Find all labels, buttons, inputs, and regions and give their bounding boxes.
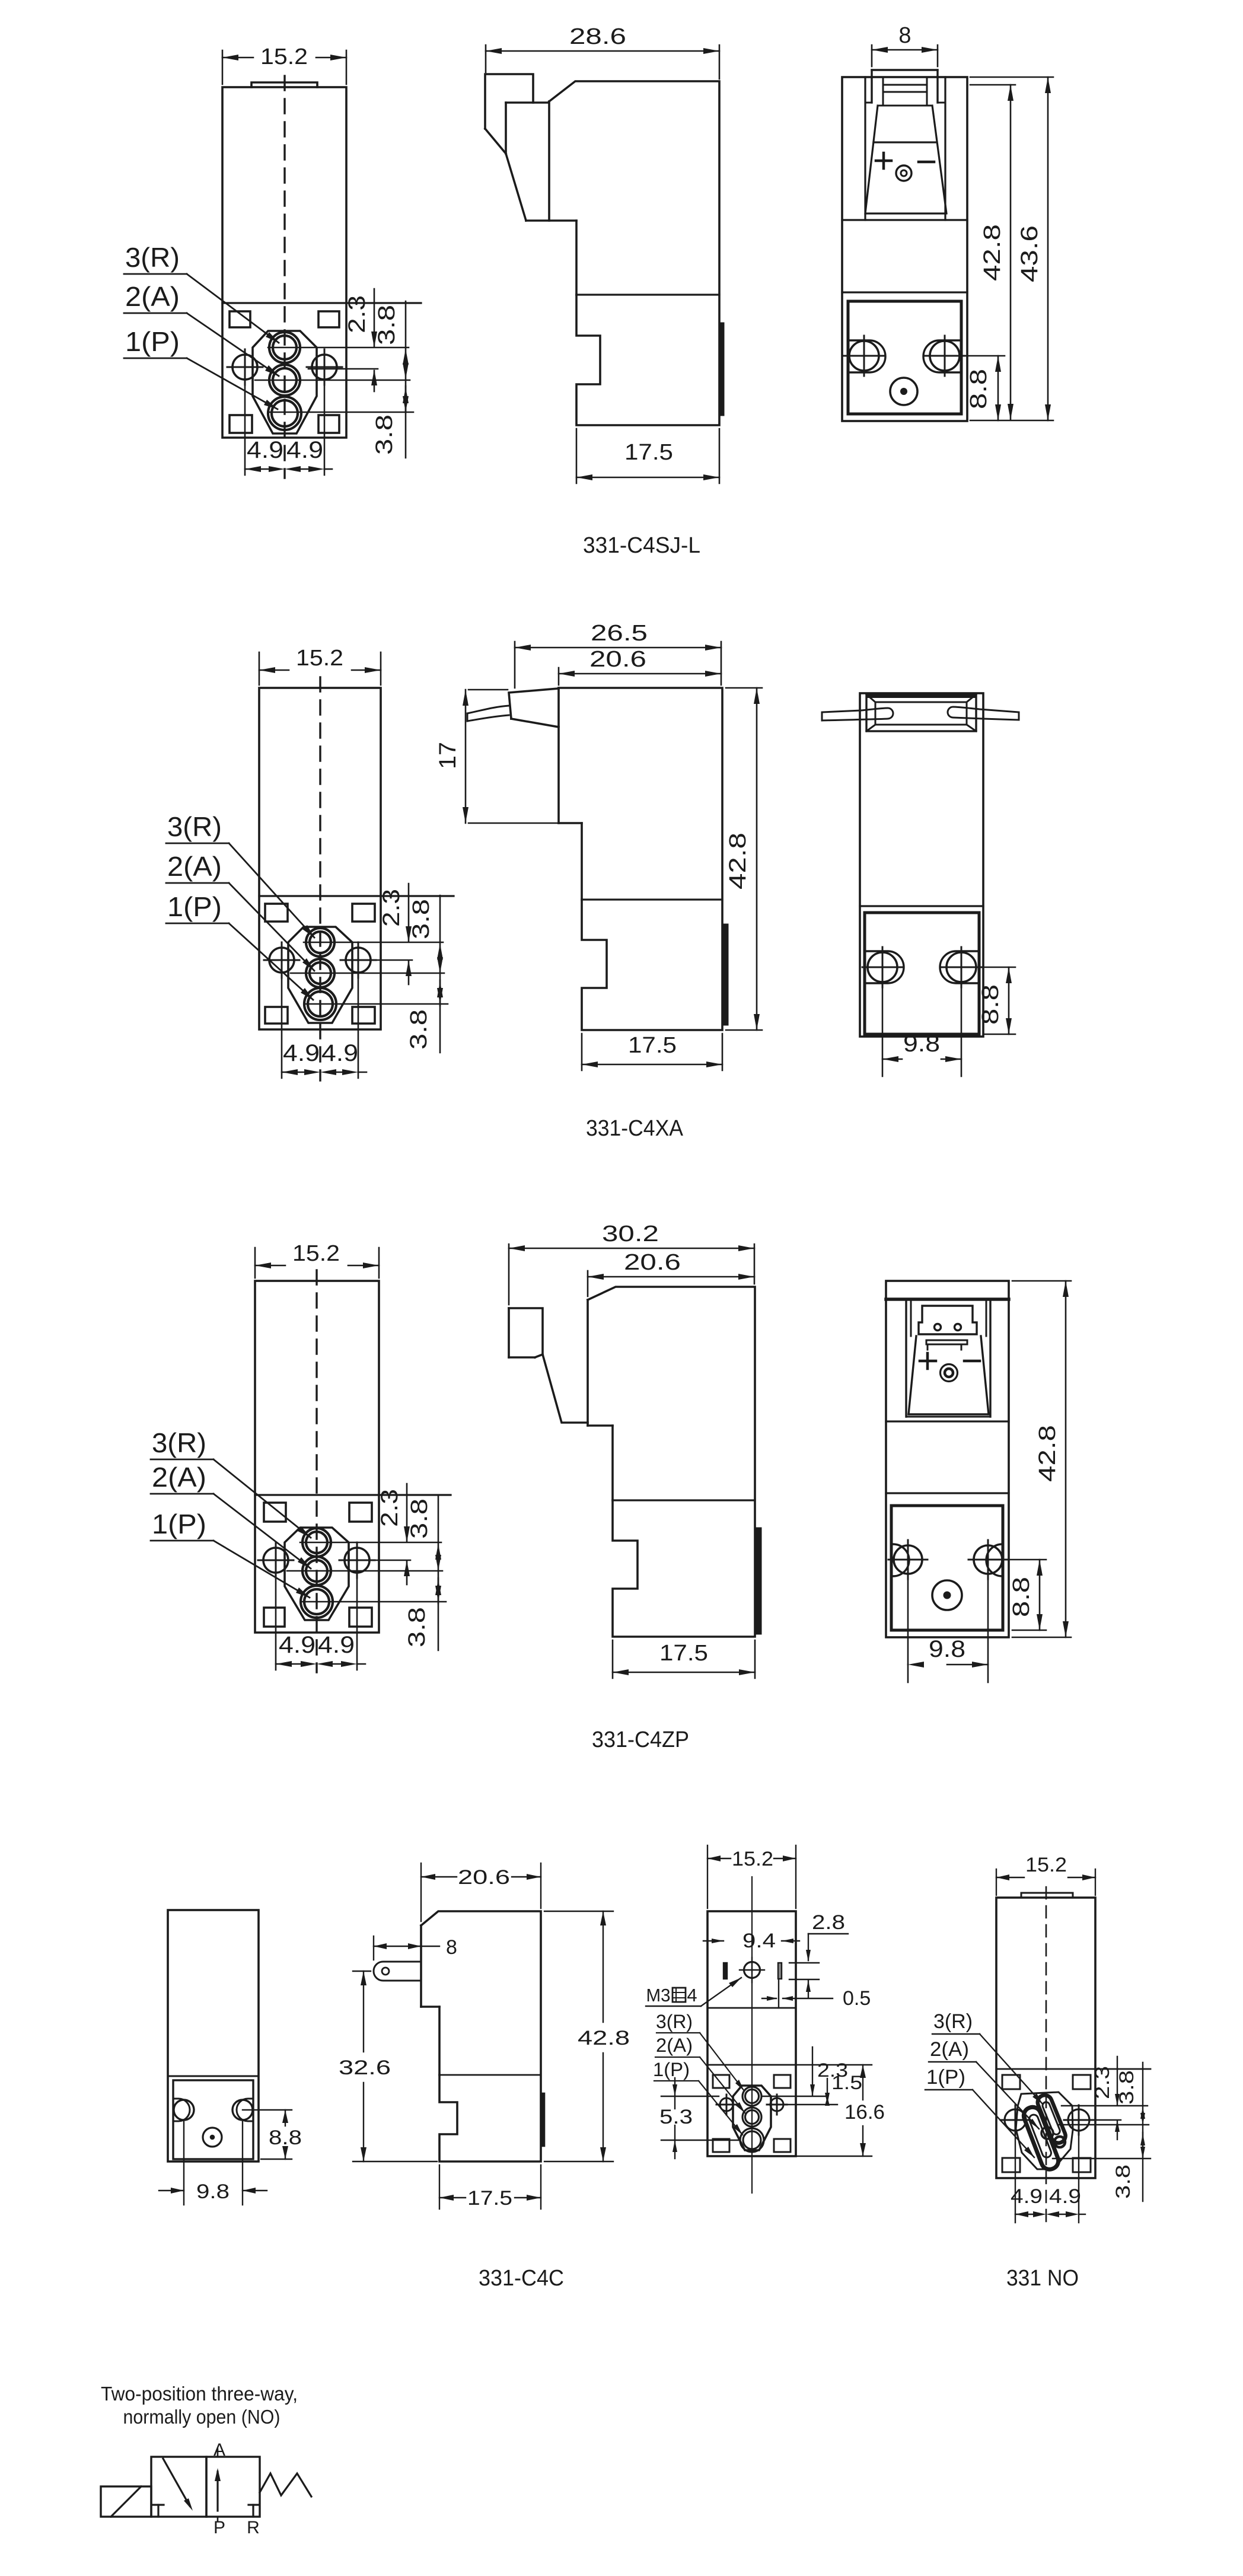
svg-text:32.6: 32.6 <box>339 2057 391 2079</box>
svg-text:331-C4C: 331-C4C <box>479 2266 564 2291</box>
svg-text:1(P): 1(P) <box>653 2059 690 2080</box>
svg-text:15.2: 15.2 <box>292 1241 340 1266</box>
svg-text:42.8: 42.8 <box>578 2027 630 2049</box>
svg-text:1(P): 1(P) <box>125 326 180 357</box>
svg-text:2.3: 2.3 <box>1091 2066 1114 2099</box>
svg-text:3(R): 3(R) <box>167 811 222 842</box>
svg-text:331 NO: 331 NO <box>1006 2266 1079 2291</box>
svg-text:17.5: 17.5 <box>467 2187 512 2210</box>
svg-text:2(A): 2(A) <box>152 1462 206 1493</box>
svg-text:2.8: 2.8 <box>812 1911 845 1934</box>
svg-text:2(A): 2(A) <box>930 2038 969 2061</box>
svg-text:16.6: 16.6 <box>844 2101 885 2124</box>
svg-text:9.8: 9.8 <box>929 1636 965 1662</box>
svg-text:15.2: 15.2 <box>1025 1854 1067 1876</box>
svg-text:4.9: 4.9 <box>1011 2185 1043 2208</box>
svg-text:20.6: 20.6 <box>458 1866 510 1889</box>
svg-text:3.8: 3.8 <box>1112 2164 1134 2199</box>
svg-text:3.8: 3.8 <box>406 1009 432 1050</box>
svg-text:3(R): 3(R) <box>933 2010 973 2033</box>
svg-text:4.9: 4.9 <box>1049 2185 1081 2208</box>
svg-text:R: R <box>247 2518 260 2537</box>
svg-text:20.6: 20.6 <box>624 1250 681 1275</box>
svg-text:17.5: 17.5 <box>628 1033 677 1058</box>
svg-text:9.8: 9.8 <box>903 1031 940 1057</box>
svg-text:331-C4XA: 331-C4XA <box>586 1116 684 1141</box>
svg-text:17.5: 17.5 <box>659 1641 708 1666</box>
svg-text:26.5: 26.5 <box>591 621 648 646</box>
svg-text:3(R): 3(R) <box>125 242 180 273</box>
svg-text:3.8: 3.8 <box>408 899 434 939</box>
svg-text:15.2: 15.2 <box>260 44 308 69</box>
svg-text:4.9: 4.9 <box>286 437 323 463</box>
svg-text:0.5: 0.5 <box>843 1987 871 2010</box>
svg-text:M3: M3 <box>646 1985 671 2006</box>
svg-text:5.3: 5.3 <box>659 2106 693 2128</box>
svg-text:1(P): 1(P) <box>152 1509 206 1539</box>
svg-text:20.6: 20.6 <box>589 647 646 672</box>
svg-text:17.5: 17.5 <box>624 440 673 465</box>
svg-text:331-C4SJ-L: 331-C4SJ-L <box>583 533 700 558</box>
svg-text:3(R): 3(R) <box>152 1427 206 1458</box>
svg-text:2(A): 2(A) <box>125 281 180 312</box>
svg-text:4.9: 4.9 <box>247 437 283 463</box>
svg-text:3(R): 3(R) <box>656 2011 693 2032</box>
svg-text:2.3: 2.3 <box>378 889 404 927</box>
svg-text:28.6: 28.6 <box>569 24 626 49</box>
svg-text:3.8: 3.8 <box>374 305 400 345</box>
svg-text:8: 8 <box>898 23 911 48</box>
svg-text:1(P): 1(P) <box>167 891 222 922</box>
svg-text:4.9: 4.9 <box>321 1040 358 1066</box>
svg-text:2.3: 2.3 <box>344 295 370 333</box>
svg-text:4.9: 4.9 <box>279 1632 315 1658</box>
svg-text:normally open (NO): normally open (NO) <box>123 2406 281 2428</box>
svg-text:3.8: 3.8 <box>406 1499 432 1539</box>
svg-text:Two-position three-way,: Two-position three-way, <box>101 2383 298 2405</box>
svg-text:43.6: 43.6 <box>1016 225 1043 282</box>
svg-text:9.4: 9.4 <box>742 1930 776 1952</box>
svg-text:2(A): 2(A) <box>167 851 222 882</box>
svg-text:1.5: 1.5 <box>831 2072 862 2093</box>
svg-text:42.8: 42.8 <box>1034 1425 1060 1482</box>
svg-text:8.8: 8.8 <box>977 984 1003 1025</box>
svg-text:15.2: 15.2 <box>732 1848 773 1870</box>
svg-text:P: P <box>213 2518 225 2537</box>
svg-text:15.2: 15.2 <box>296 646 343 671</box>
svg-text:331-C4ZP: 331-C4ZP <box>592 1727 689 1752</box>
svg-text:42.8: 42.8 <box>979 224 1005 281</box>
svg-text:4: 4 <box>687 1985 697 2006</box>
svg-text:2.3: 2.3 <box>377 1489 403 1527</box>
svg-text:9.8: 9.8 <box>196 2180 230 2203</box>
svg-text:A: A <box>213 2440 225 2460</box>
svg-text:8.8: 8.8 <box>1008 1577 1034 1617</box>
svg-text:8: 8 <box>446 1936 457 1959</box>
svg-text:1(P): 1(P) <box>926 2066 965 2089</box>
svg-text:8.8: 8.8 <box>965 369 992 409</box>
svg-text:8.8: 8.8 <box>269 2127 302 2149</box>
svg-text:4.9: 4.9 <box>283 1040 320 1066</box>
svg-text:42.8: 42.8 <box>725 833 751 890</box>
svg-text:17: 17 <box>435 742 461 769</box>
svg-text:30.2: 30.2 <box>602 1222 659 1246</box>
svg-text:3.8: 3.8 <box>404 1607 430 1647</box>
svg-text:2(A): 2(A) <box>656 2035 693 2056</box>
svg-text:3.8: 3.8 <box>1115 2070 1138 2105</box>
svg-text:3.8: 3.8 <box>371 415 397 455</box>
svg-text:4.9: 4.9 <box>318 1632 355 1658</box>
